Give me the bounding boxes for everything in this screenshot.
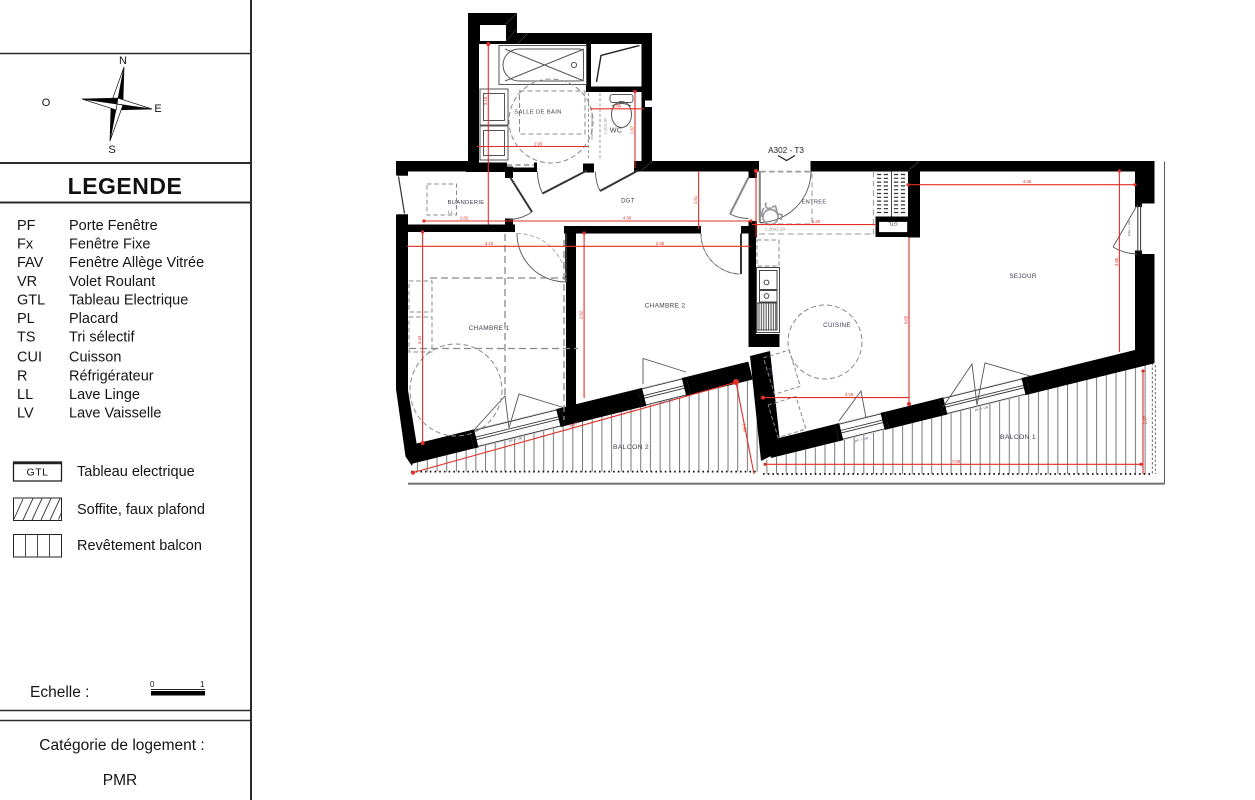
svg-text:Réfrigérateur: Réfrigérateur	[69, 369, 154, 385]
svg-text:N: N	[119, 55, 127, 67]
svg-text:CHAMBRE 2: CHAMBRE 2	[645, 303, 686, 310]
svg-text:SEJOUR: SEJOUR	[1009, 273, 1036, 280]
svg-text:3.10: 3.10	[485, 241, 494, 246]
svg-text:PMR: PMR	[103, 772, 137, 789]
svg-text:3.39: 3.39	[845, 392, 854, 397]
svg-text:E: E	[154, 103, 161, 115]
svg-text:CUISINE: CUISINE	[823, 322, 851, 329]
svg-text:Tableau Electrique: Tableau Electrique	[69, 293, 188, 309]
svg-text:2.62: 2.62	[579, 310, 584, 319]
svg-text:2.45: 2.45	[656, 241, 665, 246]
svg-text:Catégorie de logement :: Catégorie de logement :	[39, 737, 204, 754]
svg-text:2.07: 2.07	[1143, 415, 1148, 424]
svg-text:Soffite, faux plafond: Soffite, faux plafond	[77, 502, 205, 518]
svg-text:GTL: GTL	[27, 467, 49, 479]
svg-text:FAV: FAV	[17, 255, 44, 271]
svg-text:BUANDERIE: BUANDERIE	[447, 200, 484, 206]
svg-text:WC: WC	[610, 125, 623, 134]
svg-text:4.36: 4.36	[1023, 179, 1032, 184]
svg-text:Revêtement balcon: Revêtement balcon	[77, 538, 202, 554]
svg-text:Fx: Fx	[17, 237, 34, 253]
svg-text:3.43: 3.43	[417, 335, 422, 344]
svg-text:3.80: 3.80	[1114, 257, 1119, 266]
svg-text:Tableau electrique: Tableau electrique	[77, 464, 195, 480]
svg-text:CHAMBRE 1: CHAMBRE 1	[469, 325, 510, 332]
svg-text:2.95: 2.95	[534, 141, 543, 146]
svg-text:0: 0	[150, 680, 155, 689]
svg-text:Fenêtre Allège Vitrée: Fenêtre Allège Vitrée	[69, 255, 204, 271]
svg-text:1.67: 1.67	[629, 125, 634, 134]
svg-text:A302 - T3: A302 - T3	[768, 146, 804, 155]
svg-text:4.39: 4.39	[623, 216, 632, 221]
svg-text:3.05: 3.05	[903, 315, 908, 324]
svg-text:1,20x1,80: 1,20x1,80	[604, 118, 608, 134]
svg-text:Porte Fenêtre: Porte Fenêtre	[69, 218, 158, 234]
svg-text:LL: LL	[448, 210, 454, 215]
svg-text:R: R	[17, 369, 27, 385]
svg-text:LEGENDE: LEGENDE	[68, 173, 183, 199]
svg-text:VR: VR	[17, 274, 37, 290]
svg-text:GTL: GTL	[17, 293, 45, 309]
svg-text:Lave Linge: Lave Linge	[69, 387, 140, 403]
svg-text:2.40: 2.40	[812, 219, 821, 224]
svg-text:Volet Roulant: Volet Roulant	[69, 274, 155, 290]
svg-text:Tri sélectif: Tri sélectif	[69, 330, 135, 346]
svg-text:BALCON 2: BALCON 2	[613, 444, 649, 451]
svg-text:PF: PF	[17, 218, 36, 234]
svg-text:1.51: 1.51	[693, 195, 698, 204]
svg-text:GTL: GTL	[888, 221, 898, 227]
svg-text:TS: TS	[17, 330, 36, 346]
svg-text:1.80: 1.80	[613, 104, 622, 109]
svg-text:Fenêtre Fixe: Fenêtre Fixe	[69, 237, 150, 253]
svg-text:Cuisson: Cuisson	[69, 350, 121, 366]
svg-text:Echelle :: Echelle :	[30, 684, 89, 701]
svg-text:Placard: Placard	[69, 311, 118, 327]
svg-text:1.82: 1.82	[460, 216, 469, 221]
svg-text:SALLE DE BAIN: SALLE DE BAIN	[514, 109, 561, 115]
svg-text:ENTREE: ENTREE	[802, 200, 827, 206]
svg-text:3.18: 3.18	[483, 96, 488, 105]
svg-text:cloison amovible: cloison amovible	[590, 112, 594, 139]
svg-text:S: S	[108, 144, 115, 156]
svg-text:7.08: 7.08	[952, 459, 961, 464]
svg-text:LV: LV	[17, 406, 34, 422]
svg-text:Lave Vaisselle: Lave Vaisselle	[69, 406, 161, 422]
svg-text:O: O	[42, 97, 51, 109]
svg-text:1: 1	[200, 680, 205, 689]
svg-text:LL: LL	[17, 387, 33, 403]
svg-text:DGT: DGT	[621, 198, 635, 205]
svg-text:BALCON 1: BALCON 1	[1000, 434, 1036, 441]
svg-text:CUI: CUI	[17, 350, 42, 366]
svg-text:1.20x2,20: 1.20x2,20	[765, 227, 786, 232]
svg-text:FAV + VR: FAV + VR	[1128, 220, 1132, 236]
svg-text:PL: PL	[17, 311, 35, 327]
